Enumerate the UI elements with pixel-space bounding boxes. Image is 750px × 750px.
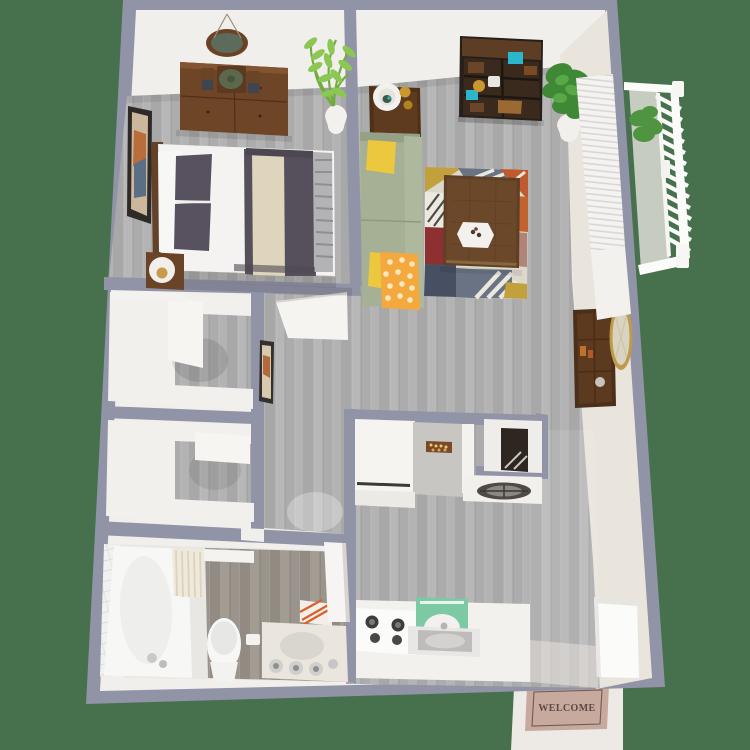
svg-text:WELCOME: WELCOME — [538, 703, 595, 714]
